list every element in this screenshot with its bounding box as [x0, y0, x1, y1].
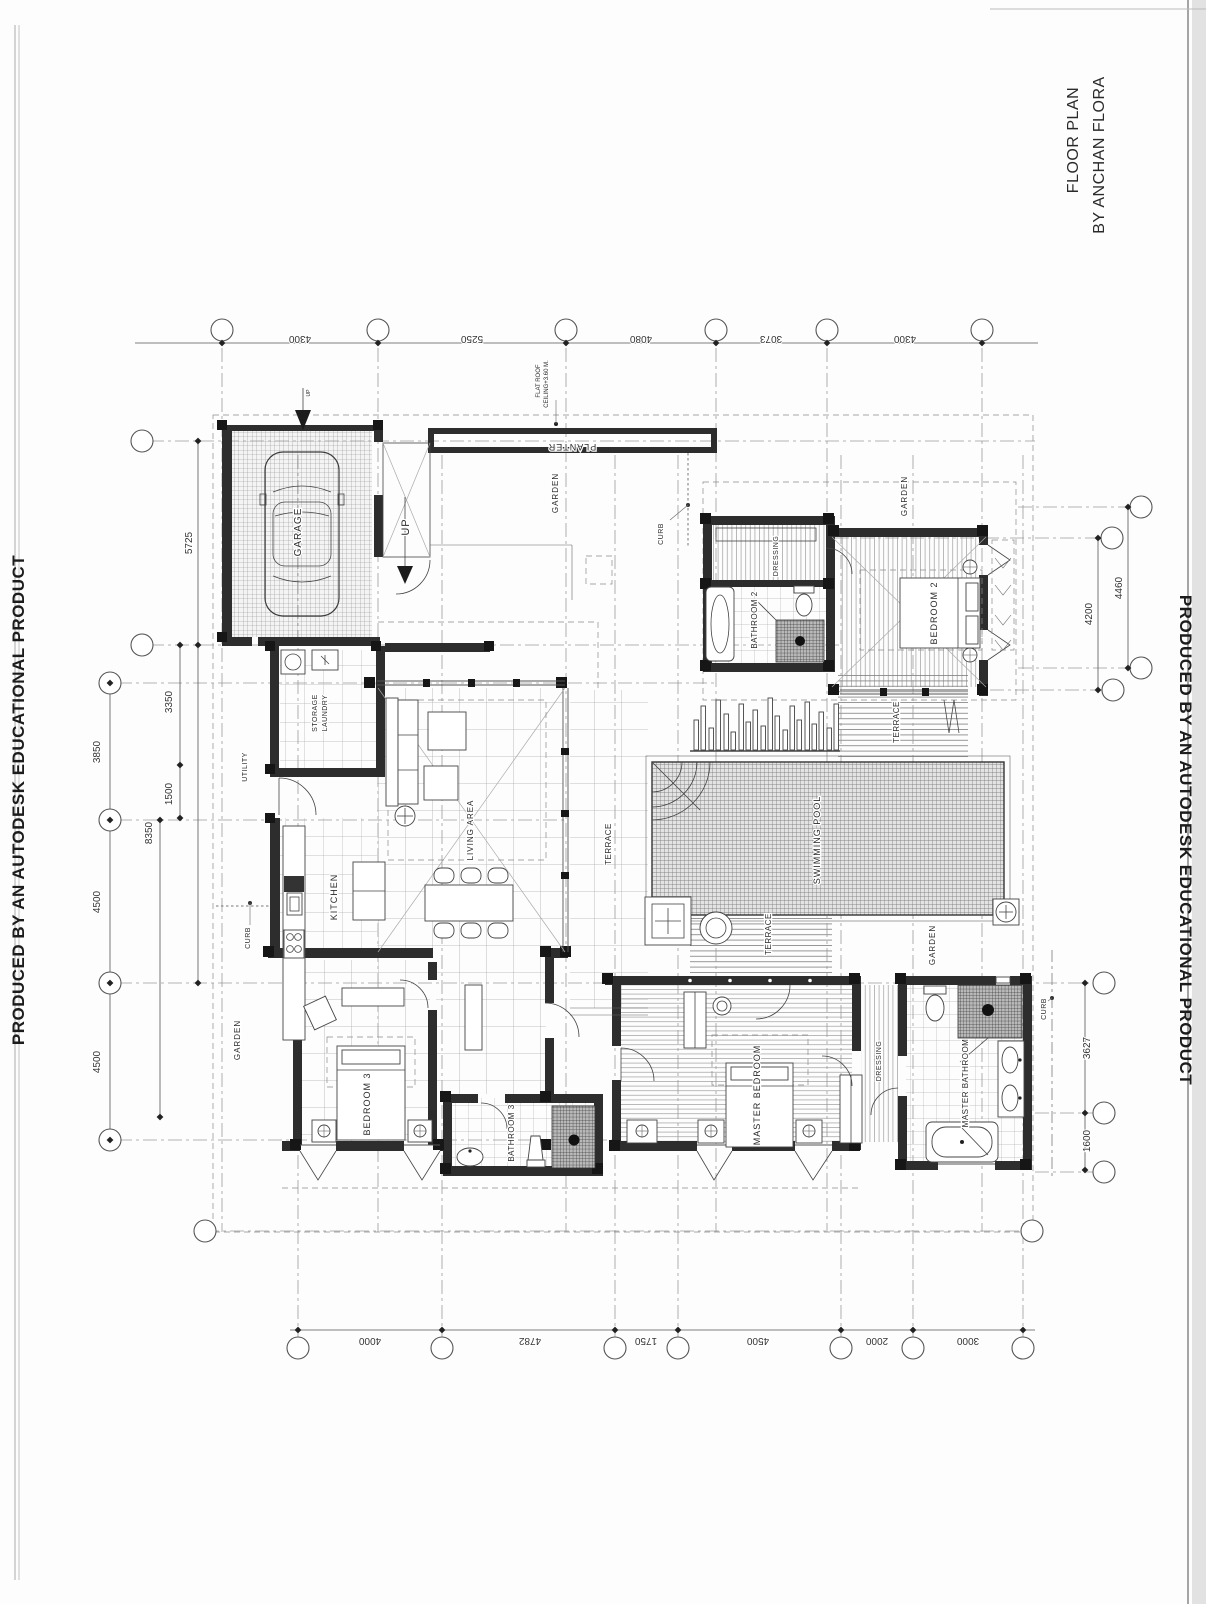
grid-bubble-6 — [287, 1337, 309, 1359]
dim-bottom-0: 4000 — [358, 1335, 381, 1346]
grid-bubble-22 — [1130, 657, 1152, 679]
grid-bubble-5 — [971, 319, 993, 341]
garden-right-label: GARDEN — [928, 925, 937, 965]
dim-right-3: 1600 — [1082, 1129, 1093, 1152]
curb-top-label: CURB — [658, 523, 665, 545]
watermark-left: PRODUCED BY AN AUTODESK EDUCATIONAL PROD… — [9, 555, 28, 1045]
sheet-title: FLOOR PLAN — [1065, 87, 1082, 193]
dim-bottom-5: 3000 — [956, 1335, 979, 1346]
planter-label: PLANTER — [548, 442, 597, 452]
grid-bubble-8 — [604, 1337, 626, 1359]
terrace-main-label: TERRACE — [604, 823, 613, 865]
grid-bubble-27 — [1021, 1220, 1043, 1242]
garden-left-label: GARDEN — [233, 1020, 242, 1060]
dressing-master-label: DRESSING — [876, 1041, 883, 1082]
grid-bubble-0 — [211, 319, 233, 341]
utility-label: UTILITY — [242, 752, 249, 782]
living-area-label: LIVING AREA — [466, 800, 475, 861]
dim-left-4: 8350 — [144, 821, 155, 844]
grid-bubble-4 — [816, 319, 838, 341]
grid-bubble-12 — [1012, 1337, 1034, 1359]
up-stair-label: UP — [400, 518, 412, 535]
grid-bubble-24 — [1093, 972, 1115, 994]
dim-tick — [675, 1327, 682, 1334]
dim-left-1: 3350 — [164, 690, 175, 713]
dim-left-0: 5725 — [184, 531, 195, 554]
grid-bubble-26 — [1093, 1161, 1115, 1183]
curb-left-label: CURB — [245, 927, 252, 949]
dressing2-label: DRESSING — [773, 536, 780, 577]
dim-right-2: 3627 — [1082, 1036, 1093, 1059]
dim-left-6: 4500 — [92, 1050, 103, 1073]
dim-left-2: 3850 — [92, 740, 103, 763]
dim-top-3: 3073 — [759, 333, 782, 344]
dim-tick — [195, 438, 202, 445]
dim-right-0: 4460 — [1114, 576, 1125, 599]
terrace2-label: TERRACE — [892, 701, 901, 743]
grid-bubble-13 — [131, 430, 153, 452]
sheet-author: BY ANCHAN FLORA — [1091, 76, 1108, 233]
dim-bottom-2: 1750 — [634, 1335, 657, 1346]
grid-bubble-21 — [1101, 527, 1123, 549]
dim-top-0: 4300 — [288, 333, 311, 344]
master-bathroom-label: MASTER BATHROOM — [961, 1039, 970, 1128]
dim-tick — [1095, 687, 1102, 694]
dim-tick — [838, 1327, 845, 1334]
grid-bubble-25 — [1093, 1102, 1115, 1124]
dim-tick — [910, 1327, 917, 1334]
bathroom2-label: BATHROOM 2 — [750, 591, 759, 648]
dim-left-3: 1500 — [164, 782, 175, 805]
grid-bubble-20 — [1130, 496, 1152, 518]
grid-bubble-9 — [667, 1337, 689, 1359]
dim-tick — [177, 762, 184, 769]
grid-bubble-11 — [902, 1337, 924, 1359]
dim-right-1: 4200 — [1084, 602, 1095, 625]
dim-top-4: 4300 — [893, 333, 916, 344]
grid-bubble-14 — [131, 634, 153, 656]
dim-tick — [439, 1327, 446, 1334]
dim-top-1: 5250 — [460, 333, 483, 344]
storage-label: STORAGE — [312, 694, 319, 732]
laundry-label: LAUNDRY — [322, 695, 329, 732]
master-bedroom-label: MASTER BEDROOM — [752, 1045, 762, 1146]
dim-tick — [295, 1327, 302, 1334]
garage-label: GARAGE — [293, 508, 304, 557]
dim-tick — [612, 1327, 619, 1334]
floor-plan-drawing: 4300525040803073430040004782175045002000… — [0, 0, 1206, 1604]
dim-tick — [1095, 535, 1102, 542]
curb-right-label: CURB — [1041, 998, 1048, 1020]
grid-bubble-19 — [194, 1220, 216, 1242]
swimming-pool-label: SWIMMING POOL — [812, 796, 822, 885]
dim-left-5: 4500 — [92, 890, 103, 913]
floor-plan-sheet: 4300525040803073430040004782175045002000… — [0, 0, 1206, 1604]
dim-tick — [195, 642, 202, 649]
kitchen-label: KITCHEN — [329, 874, 339, 921]
bedroom2-label: BEDROOM 2 — [929, 581, 939, 644]
dim-tick — [195, 980, 202, 987]
terrace-low-label: TERRACE — [764, 913, 773, 955]
dim-bottom-3: 4500 — [746, 1335, 769, 1346]
dim-tick — [1082, 980, 1089, 987]
dim-tick — [157, 1114, 164, 1121]
louver-screen — [690, 698, 840, 751]
grid-bubble-23 — [1102, 679, 1124, 701]
dim-tick — [157, 817, 164, 824]
swimming-pool — [646, 756, 1019, 925]
dim-bottom-1: 4782 — [518, 1335, 541, 1346]
garden-top-label: GARDEN — [551, 473, 560, 513]
dim-tick — [1020, 1327, 1027, 1334]
grid-bubble-10 — [830, 1337, 852, 1359]
flat-roof-note-2: CEILING+3.60 M. — [544, 360, 550, 408]
grid-bubble-7 — [431, 1337, 453, 1359]
bathroom3-label: BATHROOM 3 — [507, 1104, 516, 1161]
grid-bubble-1 — [367, 319, 389, 341]
dim-tick — [1082, 1110, 1089, 1117]
dim-top-2: 4080 — [629, 333, 652, 344]
watermark-right: PRODUCED BY AN AUTODESK EDUCATIONAL PROD… — [1176, 595, 1195, 1085]
up-entry-label: UP — [306, 389, 312, 397]
grid-bubble-3 — [705, 319, 727, 341]
dim-tick — [177, 642, 184, 649]
grid-bubble-2 — [555, 319, 577, 341]
garden-tr-label: GARDEN — [900, 476, 909, 516]
bedroom3-label: BEDROOM 3 — [362, 1072, 372, 1135]
dim-bottom-4: 2000 — [865, 1335, 888, 1346]
flat-roof-note-1: FLAT ROOF — [536, 364, 542, 397]
